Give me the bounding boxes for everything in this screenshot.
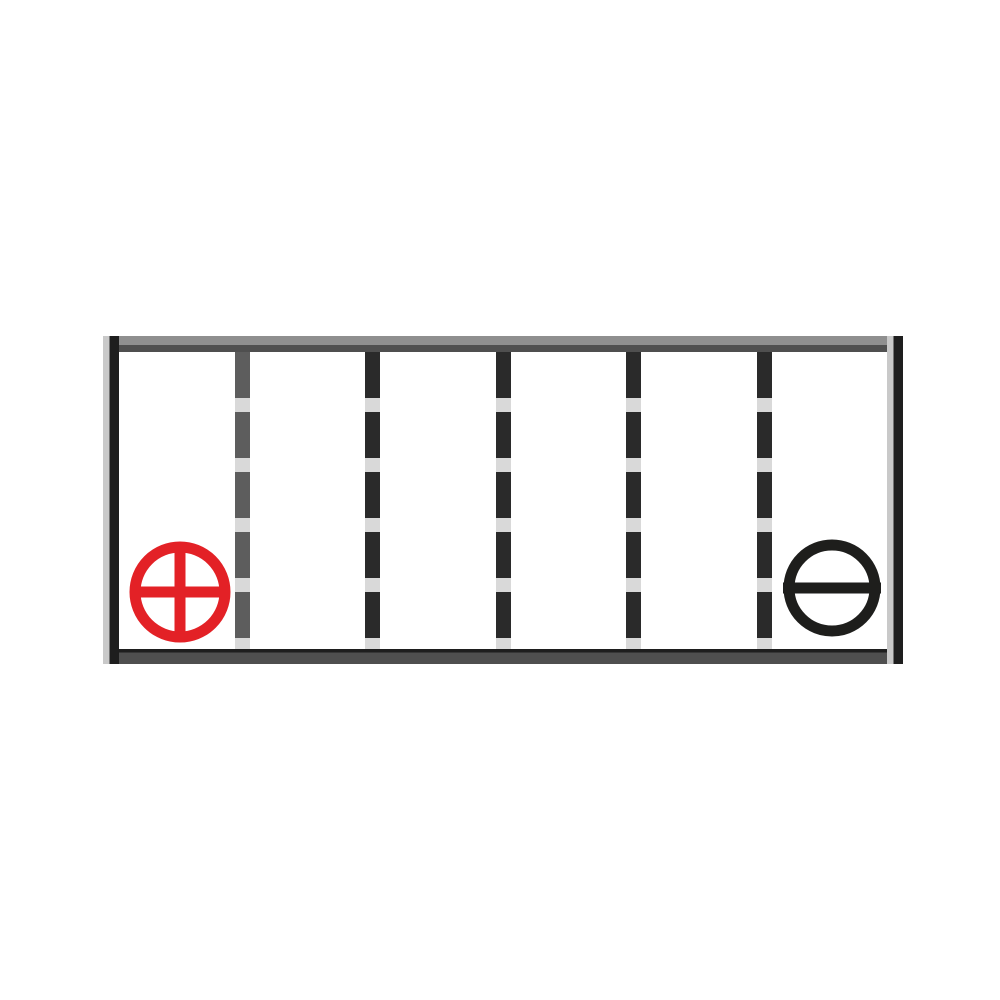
- battery-bottom-wall: [103, 649, 903, 664]
- battery-left-wall: [103, 336, 119, 664]
- cell-divider: [757, 352, 772, 649]
- cell-divider: [365, 352, 380, 649]
- diagram-canvas: [0, 0, 1000, 1000]
- cell-divider: [626, 352, 641, 649]
- battery-right-wall: [887, 336, 903, 664]
- battery-cell: [641, 352, 757, 649]
- battery-top-wall: [103, 336, 903, 352]
- cell-divider: [235, 352, 250, 649]
- battery-cell: [511, 352, 627, 649]
- battery-outline: [103, 336, 903, 664]
- battery-cell: [380, 352, 496, 649]
- positive-terminal-icon: [128, 540, 232, 644]
- battery-cell: [250, 352, 366, 649]
- cell-divider: [496, 352, 511, 649]
- negative-terminal-icon: [782, 538, 882, 638]
- battery-cells: [119, 352, 887, 649]
